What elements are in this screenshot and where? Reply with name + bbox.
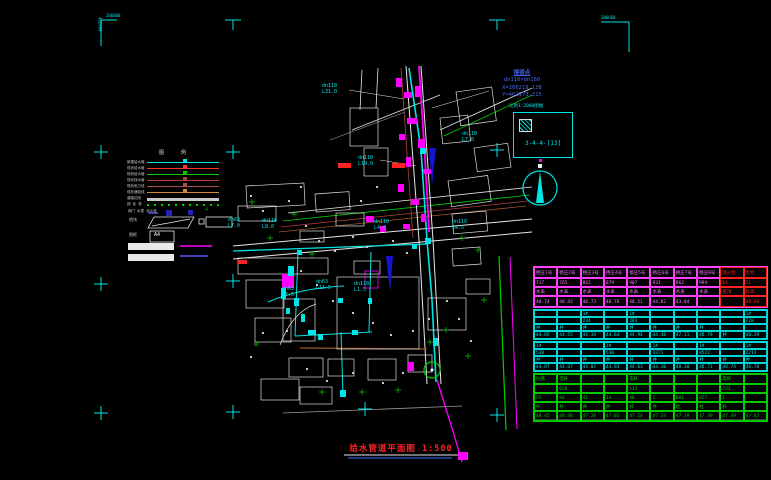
table-cell: 765 <box>557 278 580 287</box>
table-row: 234283228 <box>534 317 767 324</box>
table-cell <box>534 384 557 393</box>
table-cell: 1# <box>744 342 767 349</box>
table-cell: 井 <box>720 331 743 339</box>
table-cell: 14 <box>604 393 627 402</box>
table-cell <box>557 317 580 324</box>
table-cell: 水表 <box>674 287 697 296</box>
table-cell: 994 <box>697 278 720 287</box>
tiny-annotation <box>250 356 252 358</box>
map-line <box>360 70 362 110</box>
table-cell: 水表 <box>697 287 720 296</box>
table-cell: 井 <box>697 324 720 331</box>
table-cell <box>674 384 697 393</box>
map-block <box>188 210 193 215</box>
map-block <box>398 184 404 192</box>
table-cell: 44.64 <box>604 331 627 339</box>
table-cell: 1# <box>650 342 673 349</box>
north-arrow-pointer <box>536 171 544 203</box>
table-cell: 砼路 <box>534 374 557 384</box>
table-cell: 48.10 <box>674 363 697 371</box>
table-cell: 44.85 <box>534 331 557 339</box>
table-cell <box>557 349 580 356</box>
map-outline <box>206 217 232 227</box>
detail-reference-box: 3-4-4-[13] <box>513 112 573 158</box>
table-cell: 1# <box>627 310 650 317</box>
table-cell: 931 <box>650 278 673 287</box>
table-cell: 44.93 <box>604 363 627 371</box>
map-path <box>280 304 316 345</box>
tiny-annotation <box>390 334 392 336</box>
tiny-annotation <box>326 380 328 382</box>
detail-sheet-code: 3-4-4-[13] <box>514 140 572 147</box>
table-cell: 48.48 <box>557 411 580 421</box>
tiny-annotation <box>458 318 460 320</box>
table-row: 1#1#1# <box>534 310 767 317</box>
table-cell <box>581 349 604 356</box>
table-cell <box>627 342 650 349</box>
map-line <box>437 380 452 428</box>
detail-box-title: 比例1:2000图幅 <box>509 103 543 109</box>
table-row: 井井井井井井井井 <box>534 324 767 331</box>
table-cell: 杆 <box>534 402 557 411</box>
legend-line-sample <box>147 174 219 175</box>
tiny-annotation <box>316 284 318 286</box>
map-block <box>421 214 426 222</box>
map-block <box>418 139 425 148</box>
building-outline <box>255 318 291 342</box>
connection-x: X=206219.138 <box>484 85 560 92</box>
table-cell: 井 <box>581 402 604 411</box>
table-cell <box>674 310 697 317</box>
table-cell: 井 <box>650 402 673 411</box>
legend-line-sample <box>147 186 219 187</box>
map-line <box>283 195 530 221</box>
map-line <box>330 112 405 140</box>
table-cell: 47.49 <box>720 411 743 421</box>
table-cell: 杨庄4号 <box>604 267 627 278</box>
table-cell: 48.78 <box>744 363 767 371</box>
table-cell: 64 <box>720 278 743 287</box>
table-cell: 47.63 <box>744 411 767 421</box>
tiny-annotation <box>334 250 336 252</box>
table-cell <box>557 342 580 349</box>
table-section: 1#1#1#234283228井井井井井井井井44.8544.5544.3444… <box>533 309 768 340</box>
table-cell: 井 <box>557 324 580 331</box>
table-cell: 47.24 <box>627 411 650 421</box>
table-row: 44.8744.6744.0744.9344.6344.1048.1048.71… <box>534 363 767 371</box>
tiny-annotation <box>470 340 472 342</box>
table-cell: 杨庄5号 <box>627 267 650 278</box>
tiny-annotation <box>402 372 404 374</box>
map-block <box>420 148 426 154</box>
table-cell <box>697 374 720 384</box>
table-cell: 1# <box>744 310 767 317</box>
map-block <box>411 199 419 205</box>
table-cell <box>604 384 627 393</box>
table-cell: 杨庄7号 <box>674 267 697 278</box>
map-block <box>308 330 316 335</box>
table-row: 井井井井井井井井井井 <box>534 356 767 363</box>
table-cell: 井 <box>627 324 650 331</box>
map-block <box>366 216 374 222</box>
table-cell: 48.60 <box>744 296 767 307</box>
table-cell: 44.87 <box>534 363 557 371</box>
table-cell: 228 <box>744 317 767 324</box>
map-block <box>340 390 346 397</box>
legend-rows: 新建给水管现状给水管规划给水管现状排水管现状电力线现状通信线道路边线绿 化 带 <box>127 160 222 208</box>
map-block <box>352 330 358 335</box>
table-cell: 电杆 <box>557 374 580 384</box>
map-line <box>283 406 462 413</box>
map-line <box>510 257 517 429</box>
table-cell <box>720 349 743 356</box>
table-cell: 8522 <box>697 349 720 356</box>
map-block <box>380 226 386 232</box>
table-cell: 井 <box>697 356 720 363</box>
legend-row-label: 规划给水管 <box>127 172 145 177</box>
table-cell: 31 <box>744 278 767 287</box>
table-cell: 44.48 <box>650 331 673 339</box>
building-outline <box>315 192 350 212</box>
table-cell: 530 <box>604 349 627 356</box>
table-cell: 管顶 <box>720 287 743 296</box>
table-cell <box>674 317 697 324</box>
table-cell: 电杆 <box>627 374 650 384</box>
map-block <box>338 163 351 168</box>
table-cell: 47.49 <box>697 411 720 421</box>
table-cell: 井 <box>534 324 557 331</box>
table-cell: 47.11 <box>674 331 697 339</box>
tiny-annotation <box>332 300 334 302</box>
connection-spec: dn110×dn160 <box>484 77 560 84</box>
map-block <box>281 288 286 299</box>
tiny-annotation <box>305 225 307 227</box>
table-cell: 44.10 <box>650 363 673 371</box>
building-outline <box>289 358 323 377</box>
legend-line-sample <box>147 198 219 201</box>
table-cell: 消火栓 <box>720 267 743 278</box>
flow-arrow <box>386 256 393 292</box>
table-cell: 2213 <box>744 349 767 356</box>
legend-line-sample <box>147 204 219 206</box>
table-cell <box>697 317 720 324</box>
table-cell: 723 <box>720 384 743 393</box>
table-cell: 44.67 <box>557 363 580 371</box>
table-cell <box>581 374 604 384</box>
table-cell: 1# <box>604 342 627 349</box>
map-block <box>408 362 414 371</box>
map-line <box>352 95 440 130</box>
table-cell: 杨庄2号 <box>557 267 580 278</box>
table-cell: 530 <box>534 349 557 356</box>
table-cell <box>650 384 673 393</box>
table-cell: 44.34 <box>581 331 604 339</box>
table-cell: 234 <box>581 317 604 324</box>
table-cell: 48.74 <box>534 296 557 307</box>
building-outline <box>452 211 488 234</box>
tiny-annotation <box>392 240 394 242</box>
map-block <box>423 169 432 174</box>
table-cell: 水表 <box>627 287 650 296</box>
map-block <box>433 338 438 346</box>
legend-header-left: 图 <box>159 149 164 156</box>
legend-row-label: 新建给水管 <box>127 160 145 165</box>
map-block <box>406 157 411 167</box>
table-cell: 020 <box>557 384 580 393</box>
connection-title: 接驳点 <box>484 70 560 77</box>
tiny-annotation <box>300 270 302 272</box>
legend-line-sample <box>147 168 219 169</box>
table-cell: 水表 <box>650 287 673 296</box>
connection-note: 接驳点 dn110×dn160 X=206219.138 Y=462173.21… <box>484 70 560 100</box>
table-cell: 井 <box>534 356 557 363</box>
map-block <box>288 266 294 276</box>
map-outline <box>150 231 174 242</box>
table-cell <box>650 317 673 324</box>
building-outline <box>238 258 328 274</box>
tiny-annotation <box>306 368 308 370</box>
table-cell: 48.45 <box>534 411 557 421</box>
table-cell: 48.51 <box>627 296 650 307</box>
table-cell <box>534 310 557 317</box>
table-cell: 标高 <box>744 287 767 296</box>
building-outline <box>474 143 511 171</box>
building-outline <box>364 148 388 176</box>
table-cell <box>534 317 557 324</box>
building-outline <box>238 206 276 221</box>
table-row: 530530337185222213 <box>534 349 767 356</box>
table-row: 杨庄1号杨庄2号杨庄3号杨庄4号杨庄5号杨庄6号杨庄7号杨庄8号消火栓水栓 <box>534 267 767 278</box>
table-row: 砼路电杆电杆电杆 <box>534 374 767 384</box>
table-cell <box>720 324 743 331</box>
table-cell <box>604 317 627 324</box>
table-row: 44.8544.5544.3444.6444.9444.4847.1148.79… <box>534 331 767 339</box>
map-line <box>369 252 371 332</box>
table-row: 48.7448.4348.7348.7648.5144.8243.0448.60 <box>534 296 767 307</box>
map-line <box>341 332 343 396</box>
map-block <box>166 210 172 216</box>
tiny-annotation <box>286 330 288 332</box>
tiny-annotation <box>300 186 302 188</box>
legend-line-sample <box>147 162 219 163</box>
legend-row-label: 绿 化 带 <box>127 202 142 207</box>
map-block <box>286 308 290 314</box>
table-cell <box>744 324 767 331</box>
tiny-annotation <box>428 318 430 320</box>
building-outline <box>440 115 471 144</box>
table-section: 1#1#1#1#1#530530337185222213井井井井井井井井井井44… <box>533 341 768 372</box>
table-cell: 杨庄3号 <box>581 267 604 278</box>
table-cell: 水表 <box>557 287 580 296</box>
building-outline <box>328 359 354 376</box>
table-cell: 1 <box>720 393 743 402</box>
legend-row-label: 现状给水管 <box>127 166 145 171</box>
table-cell: 48.76 <box>604 296 627 307</box>
tiny-annotation <box>352 372 354 374</box>
table-row: 020533723 <box>534 384 767 393</box>
tiny-annotation <box>288 200 290 202</box>
building-outline <box>246 280 284 308</box>
map-block <box>128 243 174 250</box>
table-cell: 717 <box>534 278 557 287</box>
building-outline <box>368 359 396 380</box>
table-cell <box>744 393 767 402</box>
table-cell: 842 <box>581 278 604 287</box>
tiny-annotation <box>318 240 320 242</box>
table-cell: 井 <box>581 324 604 331</box>
table-cell: 1# <box>697 342 720 349</box>
table-row: 水表水表水表水表水表水表水表水表管顶标高 <box>534 287 767 296</box>
building-outline <box>300 387 332 404</box>
table-cell <box>744 402 767 411</box>
map-block <box>318 334 323 340</box>
pipeline-data-table: 杨庄1号杨庄2号杨庄3号杨庄4号杨庄5号杨庄6号杨庄7号杨庄8号消火栓水栓717… <box>533 266 768 423</box>
table-cell: 1 <box>650 393 673 402</box>
table-cell: 1# <box>581 310 604 317</box>
tiny-annotation <box>406 252 408 254</box>
table-cell: 水表 <box>581 287 604 296</box>
map-block <box>538 164 542 168</box>
map-line <box>295 332 372 336</box>
legend-header-right: 例 <box>181 149 186 156</box>
legend-row-label: 现状电力线 <box>127 184 145 189</box>
table-cell <box>720 317 743 324</box>
table-cell <box>604 310 627 317</box>
tiny-annotation <box>360 200 362 202</box>
building-outline <box>354 261 380 274</box>
table-cell: 44.55 <box>557 331 580 339</box>
table-cell: 48.39 <box>744 331 767 339</box>
table-cell <box>744 384 767 393</box>
connection-y: Y=462173.215 <box>484 92 560 99</box>
building-outline <box>448 175 491 206</box>
table-cell: 44.07 <box>581 363 604 371</box>
map-outline <box>199 219 204 224</box>
flow-arrow <box>429 148 436 186</box>
table-row: 48.4548.4847.2847.0247.2447.3447.3947.49… <box>534 411 767 421</box>
table-row: 7177658428799079319629946431 <box>534 278 767 287</box>
map-block <box>407 118 417 124</box>
map-block <box>539 159 542 162</box>
table-cell <box>581 384 604 393</box>
building-outline <box>466 279 490 294</box>
table-cell <box>697 384 720 393</box>
table-cell: 井 <box>650 356 673 363</box>
legend-line-sample <box>147 180 219 181</box>
table-cell <box>650 374 673 384</box>
legend-row: 绿 化 带 <box>127 202 222 208</box>
tiny-annotation <box>412 330 414 332</box>
table-cell <box>674 374 697 384</box>
table-cell: 杆 <box>627 402 650 411</box>
table-cell <box>720 296 743 307</box>
legend-line-sample <box>147 192 219 193</box>
map-block <box>404 92 412 98</box>
legend-row-label: 道路边线 <box>127 196 141 201</box>
table-cell: 801 <box>674 393 697 402</box>
table-cell: 47.02 <box>604 411 627 421</box>
map-block <box>425 238 431 244</box>
hatch-swatch <box>519 119 532 132</box>
table-cell: 47.34 <box>650 411 673 421</box>
map-block <box>238 260 247 264</box>
table-cell: 井 <box>674 324 697 331</box>
map-circle <box>431 369 434 372</box>
map-block <box>368 298 372 304</box>
table-row: 558441144818018271 <box>534 393 767 402</box>
building-outline <box>300 231 324 242</box>
table-cell: 1# <box>534 342 557 349</box>
tiny-annotation <box>262 332 264 334</box>
table-cell: 283 <box>627 317 650 324</box>
cad-canvas: dn110 L31.0dn110 L19.0dn63 L7.0dn110 L8.… <box>0 0 771 480</box>
table-cell: 电杆 <box>720 374 743 384</box>
table-cell: 533 <box>627 384 650 393</box>
legend-row-label: 现状排水管 <box>127 178 145 183</box>
map-line <box>432 91 489 108</box>
building-outline <box>246 183 305 208</box>
table-cell: 44.63 <box>627 363 650 371</box>
table-cell: 48.43 <box>557 296 580 307</box>
map-block <box>403 224 410 229</box>
table-cell: 48.79 <box>697 331 720 339</box>
table-cell: 井 <box>720 356 743 363</box>
table-cell: 井 <box>604 324 627 331</box>
map-line <box>152 219 190 226</box>
table-cell <box>581 342 604 349</box>
map-block <box>415 86 420 97</box>
table-cell: 栓 <box>697 402 720 411</box>
map-block <box>412 244 417 249</box>
map-block <box>301 314 305 322</box>
table-cell: 84 <box>557 393 580 402</box>
table-cell: 井 <box>604 402 627 411</box>
map-line <box>499 256 506 430</box>
drawing-title: 给水管道平面图 1:500 <box>338 442 464 454</box>
table-cell: 杆 <box>557 402 580 411</box>
tiny-annotation <box>366 246 368 248</box>
table-cell: 879 <box>604 278 627 287</box>
legend-row-label: 现状通信线 <box>127 190 145 195</box>
map-line <box>427 240 432 300</box>
tiny-annotation <box>352 312 354 314</box>
map-line <box>376 68 378 108</box>
table-cell: 44.82 <box>650 296 673 307</box>
table-cell: 43.04 <box>674 296 697 307</box>
table-cell: 48.74 <box>720 363 743 371</box>
table-row: 1#1#1#1#1# <box>534 342 767 349</box>
table-cell: 44.94 <box>627 331 650 339</box>
tiny-annotation <box>446 300 448 302</box>
table-cell <box>627 349 650 356</box>
table-cell: 48.71 <box>697 363 720 371</box>
table-cell <box>720 310 743 317</box>
table-cell: 井 <box>627 356 650 363</box>
table-cell: 井 <box>674 356 697 363</box>
table-cell: 962 <box>674 278 697 287</box>
tiny-annotation <box>262 210 264 212</box>
table-cell: 水表 <box>604 287 627 296</box>
tiny-annotation <box>372 322 374 324</box>
table-cell <box>674 349 697 356</box>
table-cell: 栓 <box>674 402 697 411</box>
table-row: 杆杆井井杆井栓栓杆 <box>534 402 767 411</box>
table-section: 砼路电杆电杆电杆020533723558441144818018271杆杆井井杆… <box>533 373 768 422</box>
map-block <box>399 134 405 140</box>
map-block <box>396 78 402 87</box>
map-outline <box>365 271 378 288</box>
table-cell <box>697 310 720 317</box>
